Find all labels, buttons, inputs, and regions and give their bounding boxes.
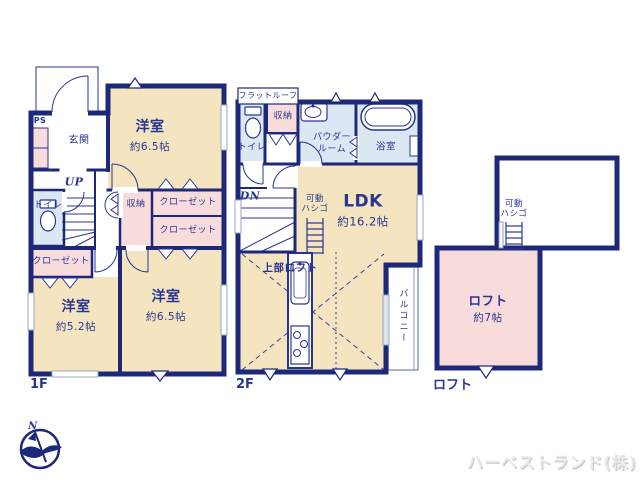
- f2-flat-roof-label: フラットルーフ: [238, 92, 297, 100]
- f1-ps-label: PS: [34, 117, 47, 125]
- floorplan-drawing: [0, 0, 640, 480]
- f1-entrance-label: 玄関: [69, 136, 90, 146]
- compass-icon: [20, 430, 62, 468]
- f2-ladder-line1: 可動: [306, 195, 324, 204]
- f1-toilet-label: トイレ: [34, 202, 63, 211]
- loft-markers: [478, 366, 494, 378]
- f2-ldk-name: LDK: [343, 194, 383, 211]
- f1-floor-tag: 1F: [30, 377, 48, 392]
- f1-porch: [36, 67, 98, 113]
- f2-ladder-line2: ハシゴ: [301, 205, 328, 214]
- f1-bedroom-left-name: 洋室: [62, 300, 91, 314]
- f2-ldk-size: 約16.2帖: [337, 216, 389, 228]
- f1-bedroom-top-name: 洋室: [136, 120, 165, 134]
- f1-bedroom-right-name: 洋室: [152, 290, 181, 304]
- floorplan-page: PS 玄関 洋室 約6.5帖 UP トイレ 収納 クローゼット クローゼット ク…: [0, 0, 640, 480]
- compass-north-label: N: [28, 422, 38, 432]
- f2-stairs: [238, 198, 295, 252]
- f1-closet-a-label: クローゼット: [159, 199, 216, 208]
- f1-bedroom-top-size: 約6.5帖: [130, 142, 170, 153]
- watermark-text: ハーベストランド(株): [467, 449, 637, 473]
- f1-closet-c-label: クローゼット: [32, 258, 89, 267]
- f2-powder-room-line2: ルーム: [318, 146, 346, 155]
- f2-toilet-label: トイレ: [238, 144, 267, 153]
- f1-bedroom-left-size: 約5.2帖: [56, 322, 96, 333]
- f2-floor-tag: 2F: [236, 377, 254, 392]
- f1-bedroom-right-size: 約6.5帖: [146, 312, 186, 323]
- f2-sink-icon: [301, 103, 327, 121]
- f2-bathroom-label: 浴室: [376, 142, 396, 152]
- f2-stairs-dn-label: DN: [240, 191, 261, 202]
- f1-closet-b-label: クローゼット: [159, 227, 216, 236]
- f1-stairs-up-label: UP: [65, 177, 84, 188]
- loft-floor-tag: ロフト: [433, 374, 472, 393]
- f2-balcony-label: バルコニー: [398, 289, 407, 344]
- f2-upper-loft-label: 上部ロフト: [263, 263, 318, 274]
- loft-room-name: ロフト: [468, 295, 507, 308]
- loft-rooms: [437, 158, 617, 368]
- loft-ladder-line1: 可動: [505, 200, 523, 209]
- loft-room-size: 約7帖: [473, 313, 502, 324]
- f2-toilet-icon: [245, 107, 261, 138]
- f1-storage-label: 収納: [126, 201, 145, 210]
- f2-storage-label: 収納: [273, 113, 292, 122]
- loft-ladder-line2: ハシゴ: [500, 210, 527, 219]
- f2-powder-room-line1: パウダー: [313, 134, 351, 143]
